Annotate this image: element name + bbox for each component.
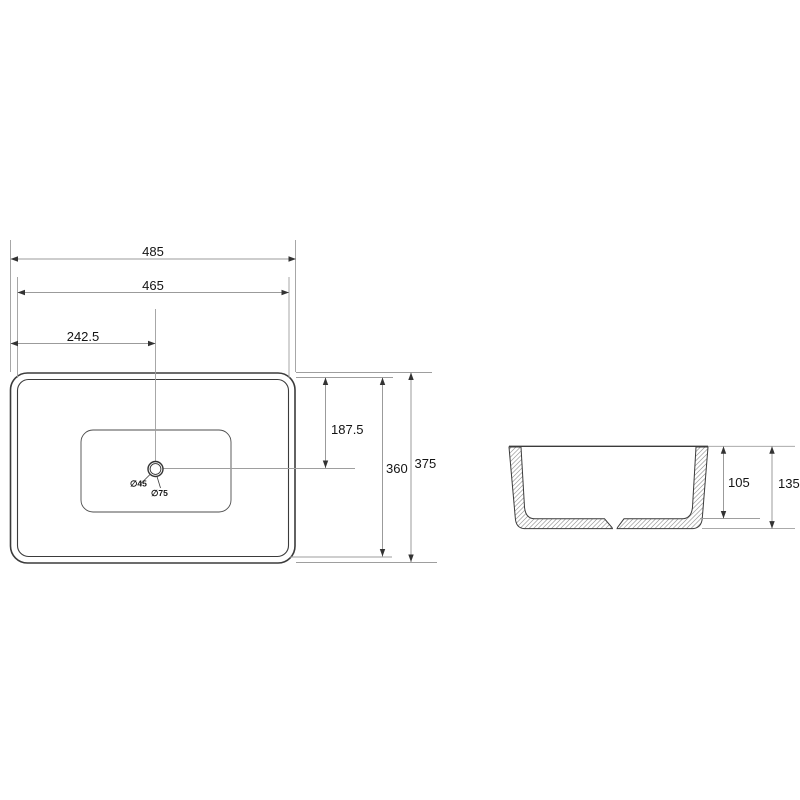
dim-label-bowl-depth: 105 [728, 475, 750, 490]
dim-label-rim-depth: 360 [386, 461, 408, 476]
drain-leader-75 [157, 477, 161, 489]
side-view [509, 446, 708, 528]
dim-label-drain-offset-y: 187.5 [331, 422, 364, 437]
top-view: ∅45 ∅75 [11, 309, 356, 563]
side-view-dimensions: 105 135 [700, 446, 800, 528]
dim-label-drain-offset-x: 242.5 [67, 329, 100, 344]
technical-drawing-canvas: ∅45 ∅75 485 465 242.5 187.5 360 375 [0, 0, 800, 800]
drain-label-45: ∅45 [130, 479, 147, 489]
side-left-wall [509, 447, 612, 529]
dim-label-overall-width: 485 [142, 244, 164, 259]
dim-label-overall-height: 135 [778, 476, 800, 491]
side-right-wall [617, 447, 708, 529]
drain-label-75: ∅75 [151, 488, 168, 498]
dim-label-rim-width: 465 [142, 278, 164, 293]
top-view-dimensions: 485 465 242.5 187.5 360 375 [11, 240, 438, 563]
dim-label-overall-depth: 375 [415, 456, 437, 471]
